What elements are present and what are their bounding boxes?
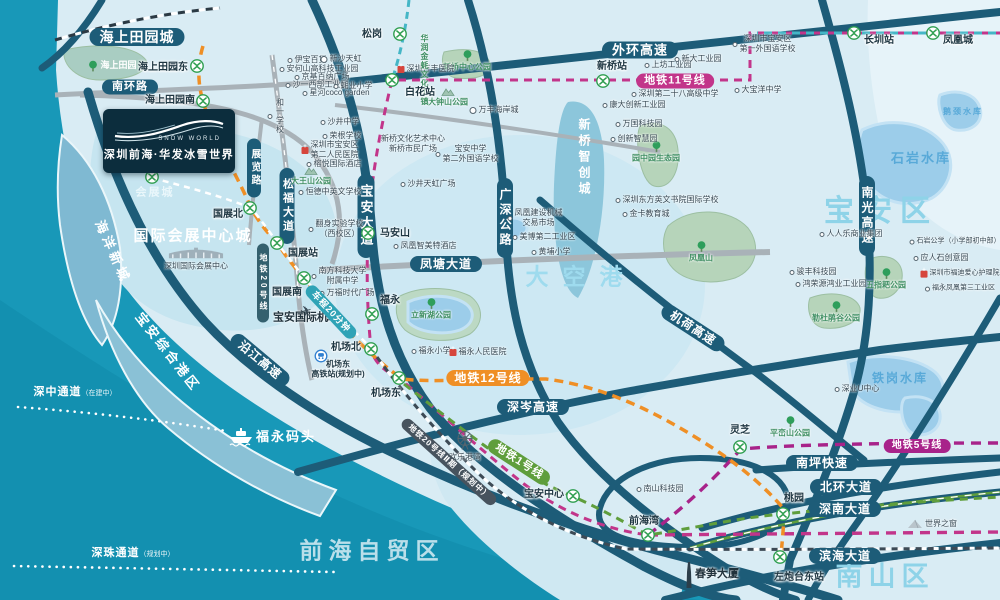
road-banner-label: 南环路 (112, 82, 148, 93)
tree-icon (696, 241, 707, 253)
poi-text: 第一外国语学校 (740, 44, 796, 54)
dot-icon (508, 216, 513, 221)
dot-icon (914, 256, 919, 261)
poi: 美博第二工业区 (513, 232, 576, 242)
brand-cn: 深圳前海·华发冰雪世界 (104, 146, 234, 162)
station-label: 国展南 (272, 287, 302, 299)
metro-station-icon (190, 59, 204, 73)
metro-line-badge: 地铁20号线 (257, 244, 269, 323)
dotlg-icon (321, 56, 328, 63)
poi: 新大工业园 (675, 54, 722, 64)
dot-icon (309, 227, 314, 232)
poi-text: 深圳市宝安区 (311, 140, 359, 150)
metro-station-icon (365, 307, 379, 321)
poi: 鸿荣源鸿业工业园 (796, 279, 867, 289)
water-label: 鹅颈水库 (943, 108, 983, 116)
poi: 康大创新工业园 (603, 100, 666, 110)
district-label: 新桥智创城 (578, 118, 590, 198)
park-name: 平峦山公园 (770, 429, 810, 439)
park-name: 五指耙公园 (866, 281, 906, 291)
dot-icon (412, 349, 417, 354)
district-label: 前海自贸区 (300, 540, 445, 563)
dot-icon (312, 274, 317, 279)
district-label: 会展城 (136, 188, 175, 199)
station-label: 桃园 (784, 493, 804, 505)
poi-text: 第二外国语学校 (443, 154, 499, 164)
poi-label: 新沙天虹 (330, 54, 362, 64)
poi: 深圳国际会展中心 (164, 245, 228, 272)
road-banner-label: 北环大道 (820, 481, 872, 493)
station-label: 国展北 (213, 209, 243, 221)
channel-status: （在建中） (82, 390, 117, 397)
poi: 新沙天虹 (321, 54, 362, 64)
poi-label: 创新智慧园 (618, 134, 658, 144)
poi: 大宝洋中学 (735, 85, 782, 95)
poi: 创新智慧园 (611, 134, 658, 144)
poi: 万福时代广场 (320, 288, 375, 298)
poi-label: 深圳市宝安区第一外国语学校 (740, 34, 796, 54)
poi-text: 人人乐商业集团 (827, 229, 883, 239)
poi-label: 深圳万丰医院 (407, 64, 455, 74)
channel-name: 深中通道 (34, 386, 82, 398)
poi: 应人石创意园 (914, 253, 969, 263)
poi-text: 春笋大厦 (695, 568, 739, 582)
dot-icon (637, 487, 642, 492)
poi-label: 福永凤凰第三工业区 (932, 285, 995, 294)
poi-text: 万福时代广场 (327, 288, 375, 298)
metro-station-icon (196, 94, 210, 108)
park-label: 立新湖公园 (411, 298, 451, 321)
metro-station-icon (926, 26, 940, 40)
poi-text: 和一学校 (275, 98, 285, 134)
poi-label: 和一学校 (275, 98, 285, 134)
poi-text: 创新智慧园 (618, 134, 658, 144)
poi-label: 华润金蚝文化小镇 (419, 34, 429, 90)
poi-text: 美博第二工业区 (520, 232, 576, 242)
poi-label: 万福时代广场 (327, 288, 375, 298)
wheel-icon (455, 430, 475, 452)
road-banner: 外环高速 (602, 42, 678, 59)
road-banner-label: 深岑高速 (507, 401, 559, 413)
poi-label: 石岩公学（小学部初中部） (917, 238, 1000, 247)
tree-icon (831, 301, 842, 313)
poi: 南方科技大学附属中学 (312, 266, 367, 286)
poi-text: 万国科技园 (623, 119, 663, 129)
poi-label: 凤凰建设机械交易市场 (515, 208, 563, 228)
tree-icon (881, 268, 892, 280)
poi: 海上田园 (87, 60, 136, 72)
dot-icon (288, 58, 293, 63)
poi-text: 深圳国际会展中心 (164, 262, 228, 272)
poi-label: 春笋大厦 (695, 568, 739, 582)
brand-en: SNOW WORLD (158, 136, 221, 142)
poi-label: 应人石创意园 (921, 253, 969, 263)
metro-station-icon (776, 507, 790, 521)
road-banner-label: 外环高速 (612, 44, 668, 57)
poi: 黄埔小学 (532, 247, 571, 257)
poi-label: 万丰海岸城 (479, 105, 519, 115)
station-label: 机场北 (331, 342, 361, 354)
poi-text: 沙井中学 (328, 117, 360, 127)
metro-line-label: 地铁11号线 (644, 76, 706, 87)
tree-icon (426, 298, 437, 310)
channel-status: （规划中） (140, 551, 175, 558)
red-icon: + (450, 349, 457, 356)
poi-text: 应人石创意园 (921, 253, 969, 263)
poi-text: 康大创新工业园 (610, 100, 666, 110)
poi: 沙井中学 (321, 117, 360, 127)
hsr-station-line: 高铁站(规划中) (311, 369, 364, 379)
ship-icon (228, 427, 254, 447)
district-label: 国际会展中心城 (133, 229, 252, 244)
poi: +深圳市福迪爱心护理院 (921, 270, 1000, 279)
pyramid-icon (907, 519, 923, 529)
dot-icon (910, 240, 915, 245)
poi-label: 榕悦国际酒店 (314, 159, 362, 169)
poi: 榕悦国际酒店 (307, 159, 362, 169)
station-label: 凤凰城 (943, 35, 973, 47)
station-label: 海上田园南 (145, 95, 195, 107)
poi: 华润金蚝文化小镇 (419, 34, 429, 90)
park-name: 勒杜鹃谷公园 (812, 314, 860, 324)
poi-label: 新大工业园 (682, 54, 722, 64)
expo-icon (167, 245, 225, 261)
water-label: 石岩水库 (891, 152, 951, 165)
road-banner-label: 展览路 (249, 149, 259, 188)
poi-label: 翻身实验学校（西校区） (316, 219, 364, 239)
poi: 星河coco garden (302, 88, 369, 98)
poi-text: 宝安中学 (443, 144, 499, 154)
park-label: 凤凰山 (689, 241, 713, 264)
poi-label: 人人乐商业集团 (827, 229, 883, 239)
station-label: 新桥站 (597, 61, 627, 73)
dot-icon (394, 244, 399, 249)
dot-icon (675, 57, 680, 62)
road-banner-label: 凤塘大道 (420, 258, 472, 270)
promo-map: SNOW WORLD 深圳前海·华发冰雪世界 海上田园城南环路外环高速凤塘大道深… (0, 0, 1000, 600)
poi: 石岩公学（小学部初中部） (910, 238, 1000, 247)
poi: 春笋大厦 (685, 562, 739, 588)
dot-icon (513, 235, 518, 240)
tree-icon (785, 416, 796, 428)
poi-label: 恒德中英文学校 (306, 187, 362, 197)
poi-label: 深圳市福迪爱心护理院 (930, 270, 1000, 279)
road-banner-label: 海上田园城 (100, 30, 175, 44)
poi: 深圳东方英文书院国际学校 (616, 195, 719, 205)
poi: 万丰海岸城 (470, 105, 519, 115)
park-name: 大王山公园 (291, 177, 331, 187)
poi-label: 深圳第二十八高级中学 (639, 89, 719, 99)
dot-icon (735, 88, 740, 93)
brand-logo-card: SNOW WORLD 深圳前海·华发冰雪世界 (103, 109, 235, 173)
poi-text: 交易市场 (515, 218, 563, 228)
poi-text: 新大工业园 (682, 54, 722, 64)
park-name: 凤凰山 (689, 254, 713, 264)
poi-text: 海上田园 (100, 60, 136, 71)
dot-icon (790, 270, 795, 275)
metro-line-badge: 地铁5号线 (884, 439, 951, 453)
poi-label: 凤凰智美特酒店 (401, 241, 457, 251)
station-label: 长圳站 (864, 35, 894, 47)
poi-text: 南山科技园 (644, 484, 684, 494)
poi-text: 沙井天虹广场 (408, 179, 456, 189)
dot-icon (295, 75, 300, 80)
poi-text: 鸿荣源鸿业工业园 (803, 279, 867, 289)
water-label: 铁岗水库 (872, 372, 928, 384)
park-name: 立新湖公园 (411, 311, 451, 321)
dot-icon (796, 282, 801, 287)
road-banner: 北环大道 (810, 479, 882, 495)
tower-icon (685, 562, 693, 588)
poi-text: 金卡教育城 (630, 209, 670, 219)
poi: +深圳市宝安区第二人民医院 (302, 140, 359, 160)
hsr-station-icon (315, 350, 328, 363)
dot-icon (323, 134, 328, 139)
tree-icon (462, 50, 473, 62)
poi-text: 福永凤凰第三工业区 (932, 285, 995, 294)
poi-text: 深圳第二十八高级中学 (639, 89, 719, 99)
poi-text: 深圳东方英文书院国际学校 (623, 195, 719, 205)
poi-text: 深圳市宝安区 (740, 34, 796, 44)
channel-name: 深珠通道 (92, 547, 140, 559)
poi-label: 深圳国际会展中心 (164, 262, 228, 272)
sea-channel-label: 深中通道（在建中） (34, 383, 117, 399)
metro-line-badge: 地铁11号线 (636, 74, 714, 89)
poi: 万国科技园 (616, 119, 663, 129)
poi-text: 星河coco garden (309, 88, 369, 98)
metro-station-icon (641, 528, 655, 542)
metro-station-icon (361, 226, 375, 240)
metro-line-label: 地铁5号线 (892, 441, 943, 451)
dot-icon (623, 212, 628, 217)
station-label: 白花站 (405, 87, 435, 99)
poi-label: 金卡教育城 (630, 209, 670, 219)
dot-icon (268, 114, 273, 119)
poi: 深圳第二十八高级中学 (632, 89, 719, 99)
poi-text: 南方科技大学 (319, 266, 367, 276)
poi-text: 福永码头 (256, 429, 316, 445)
metro-station-icon (385, 73, 399, 87)
station-label: 马安山 (380, 228, 410, 240)
poi: 人人乐商业集团 (820, 229, 883, 239)
poi-text: 凤凰智美特酒店 (401, 241, 457, 251)
station-label: 国展站 (288, 248, 318, 260)
station-label: 福永 (380, 295, 400, 307)
red-icon: + (398, 66, 405, 73)
road-banner: 凤塘大道 (410, 256, 482, 272)
metro-station-icon (773, 550, 787, 564)
road-banner: 深南大道 (809, 501, 881, 517)
metro-line-label: 地铁20号线 (259, 254, 267, 313)
poi: 凤凰智美特酒店 (394, 241, 457, 251)
poi-text: 附属中学 (319, 276, 367, 286)
station-label: 前海湾 (629, 516, 659, 528)
metro-station-icon (364, 342, 378, 356)
poi-label: 世界之窗 (925, 519, 957, 529)
station-label: 左炮台东站 (774, 572, 824, 584)
poi-text: 万丰海岸城 (479, 105, 519, 115)
poi-label: 沙井中学 (328, 117, 360, 127)
metro-line-label: 地铁12号线 (454, 372, 521, 384)
poi-text: 新桥文化艺术中心 (381, 134, 445, 144)
poi-text: 深圳万丰医院 (407, 64, 455, 74)
district-label: 宝安区 (824, 197, 938, 227)
road-banner: 南坪快速 (786, 455, 858, 471)
dot-icon (286, 83, 291, 88)
poi-text: 榕悦国际酒店 (314, 159, 362, 169)
poi-label: 深圳东方英文书院国际学校 (623, 195, 719, 205)
dot-icon (603, 103, 608, 108)
road-banner: 滨海大道 (809, 548, 881, 564)
poi-label: 福永码头 (256, 429, 316, 445)
road-banner: 南光高速 (859, 176, 875, 256)
poi: 恒德中英文学校 (299, 187, 362, 197)
dot-icon (835, 387, 840, 392)
dot-icon (532, 250, 537, 255)
poi-text: 石岩公学（小学部初中部） (917, 238, 1000, 247)
metro-station-icon (847, 26, 861, 40)
dot-icon (307, 162, 312, 167)
poi: 和一学校 (268, 98, 285, 134)
poi: 凤凰建设机械交易市场 (508, 208, 563, 228)
poi: 世界之窗 (907, 519, 957, 529)
poi-label: 南方科技大学附属中学 (319, 266, 367, 286)
poi-text: （西校区） (316, 229, 364, 239)
district-label: 南山区 (836, 564, 935, 591)
poi-label: 深业U中心 (842, 384, 880, 394)
poi-text: 福永小学 (419, 346, 451, 356)
district-label: 大空港 (526, 266, 637, 289)
poi: 沙井天虹广场 (401, 179, 456, 189)
station-label: 海上田园东 (138, 62, 188, 74)
poi-text: 黄埔小学 (539, 247, 571, 257)
dot-icon (645, 63, 650, 68)
poi-text: 骏丰科技园 (797, 267, 837, 277)
dot-icon (436, 152, 441, 157)
red-icon: + (921, 271, 928, 278)
poi: 骏丰科技园 (790, 267, 837, 277)
station-label: 机场东 (371, 388, 401, 400)
poi-text: 恒德中英文学校 (306, 187, 362, 197)
poi: 福永凤凰第三工业区 (925, 285, 995, 294)
road-banner: 海上田园城 (90, 28, 185, 46)
dot-icon (616, 122, 621, 127)
road-banner: 南环路 (102, 80, 158, 95)
poi-label: 鸿荣源鸿业工业园 (803, 279, 867, 289)
poi: +福永人民医院 (450, 347, 507, 357)
metro-station-icon (566, 489, 580, 503)
park-label: 平峦山公园 (770, 416, 810, 439)
poi-text: 世界之窗 (925, 519, 957, 529)
poi: 翻身实验学校（西校区） (309, 219, 364, 239)
road-banner: 展览路 (247, 139, 261, 198)
poi: 金卡教育城 (623, 209, 670, 219)
poi-label: 海上田园 (100, 60, 136, 71)
poi-text: 凤凰建设机械 (515, 208, 563, 218)
poi-text: 深业U中心 (842, 384, 880, 394)
poi-text: 福永人民医院 (459, 347, 507, 357)
tree-icon (87, 60, 98, 72)
poi-label: 大宝洋中学 (742, 85, 782, 95)
poi-text: 翻身实验学校 (316, 219, 364, 229)
road-banner-label: 滨海大道 (819, 550, 871, 562)
metro-station-icon (243, 201, 257, 215)
metro-station-icon (270, 236, 284, 250)
metro-station-icon (297, 271, 311, 285)
road-banner: 深岑高速 (497, 399, 569, 415)
dot-icon (925, 287, 930, 292)
poi: 深业U中心 (835, 384, 880, 394)
park-label: 勒杜鹃谷公园 (812, 301, 860, 324)
dot-icon (632, 92, 637, 97)
dot-icon (733, 42, 738, 47)
park-name: 大钟山公园 (428, 98, 468, 108)
station-label: 灵芝 (730, 425, 750, 437)
metro-line-badge: 地铁12号线 (446, 370, 529, 386)
poi: 南山科技园 (637, 484, 684, 494)
station-label: 宝安中心 (524, 489, 564, 501)
dotlg-icon (470, 107, 477, 114)
park-name: 园中园生态园 (632, 154, 680, 164)
poi: 福永小学 (412, 346, 451, 356)
poi-label: 沙井天虹广场 (408, 179, 456, 189)
metro-station-icon (393, 27, 407, 41)
poi-label: 福永小学 (419, 346, 451, 356)
dot-icon (611, 137, 616, 142)
station-label: 松岗 (362, 29, 382, 41)
dot-icon (820, 232, 825, 237)
poi: 深圳市宝安区第一外国语学校 (733, 34, 796, 54)
poi-text: 深圳市福迪爱心护理院 (930, 270, 1000, 279)
sea-channel-label: 深珠通道（规划中） (92, 544, 175, 560)
metro-station-icon (733, 440, 747, 454)
poi-label: 骏丰科技园 (797, 267, 837, 277)
metro-station-icon (392, 371, 406, 385)
poi-label: 福永人民医院 (459, 347, 507, 357)
poi-label: 星河coco garden (309, 88, 369, 98)
poi-label: 宝安中学第二外国语学校 (443, 144, 499, 164)
dot-icon (401, 182, 406, 187)
poi-text: 大宝洋中学 (742, 85, 782, 95)
poi-label: 黄埔小学 (539, 247, 571, 257)
poi-text: 新沙天虹 (330, 54, 362, 64)
park-label: 五指耙公园 (866, 268, 906, 291)
poi-label: 美博第二工业区 (520, 232, 576, 242)
poi: 福永码头 (228, 427, 316, 447)
poi-label: 康大创新工业园 (610, 100, 666, 110)
poi: 宝安中学第二外国语学校 (436, 144, 499, 164)
dot-icon (299, 190, 304, 195)
poi-label: 深圳市宝安区第二人民医院 (311, 140, 359, 160)
poi-text: 华润金蚝文化小镇 (419, 34, 429, 90)
poi-label: 南山科技园 (644, 484, 684, 494)
road-banner-label: 深南大道 (819, 503, 871, 515)
dot-icon (280, 67, 285, 72)
road-banner-label: 南坪快速 (796, 457, 848, 469)
dot-icon (616, 198, 621, 203)
plane-icon: ✈ (300, 309, 311, 311)
dot-icon (302, 91, 307, 96)
metro-station-icon (596, 74, 610, 88)
dot-icon (321, 120, 326, 125)
red-icon: + (302, 147, 309, 154)
poi-label: 万国科技园 (623, 119, 663, 129)
mountain-icon (441, 87, 455, 97)
